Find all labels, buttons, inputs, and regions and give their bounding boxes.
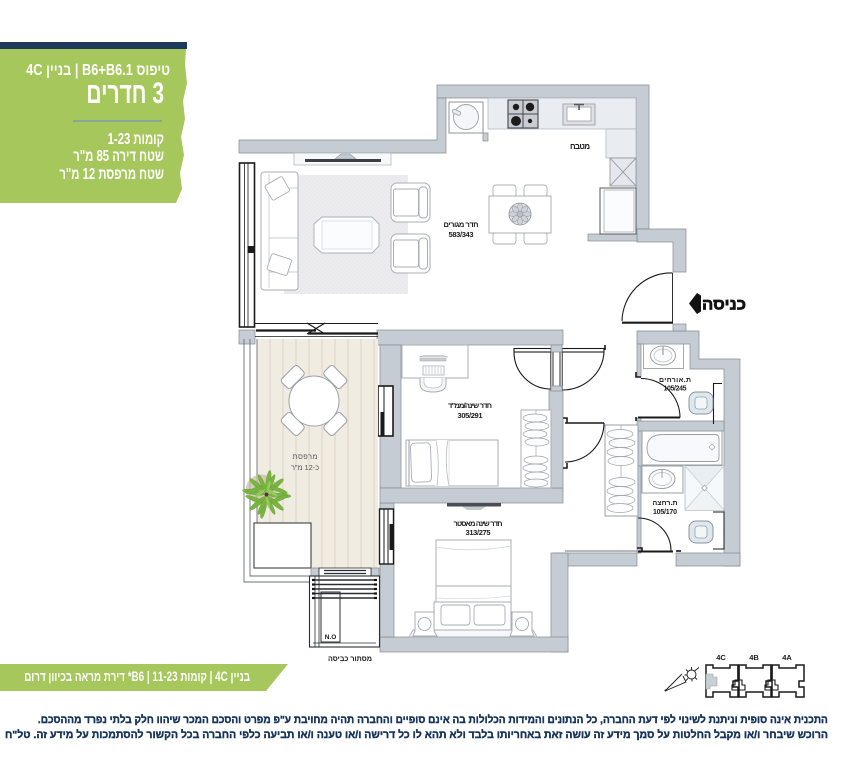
svg-text:כ-12 מ"ר: כ-12 מ"ר <box>291 463 319 472</box>
svg-text:305/291: 305/291 <box>458 411 483 420</box>
svg-text:כניסה: כניסה <box>702 297 746 314</box>
svg-text:חדר מגורים: חדר מגורים <box>444 220 479 229</box>
svg-text:מטבח: מטבח <box>570 142 590 151</box>
svg-text:4A: 4A <box>782 653 792 662</box>
svg-text:105/245: 105/245 <box>664 386 687 393</box>
svg-text:313/275: 313/275 <box>466 528 491 537</box>
svg-text:105/170: 105/170 <box>653 509 677 516</box>
svg-text:מרפסת: מרפסת <box>293 452 318 461</box>
svg-text:חדר שינה מאסטר: חדר שינה מאסטר <box>454 519 503 528</box>
svg-text:חדר שינה/ממ"ד: חדר שינה/ממ"ד <box>448 401 492 410</box>
svg-text:583/343: 583/343 <box>449 230 474 239</box>
svg-text:ת.רחצה: ת.רחצה <box>653 500 678 507</box>
svg-text:N.O: N.O <box>325 634 337 641</box>
svg-text:4C: 4C <box>716 653 726 662</box>
svg-text:מסתור כביסה: מסתור כביסה <box>328 654 372 663</box>
svg-text:4B: 4B <box>749 653 759 662</box>
svg-text:ת.אורחים: ת.אורחים <box>659 377 691 384</box>
